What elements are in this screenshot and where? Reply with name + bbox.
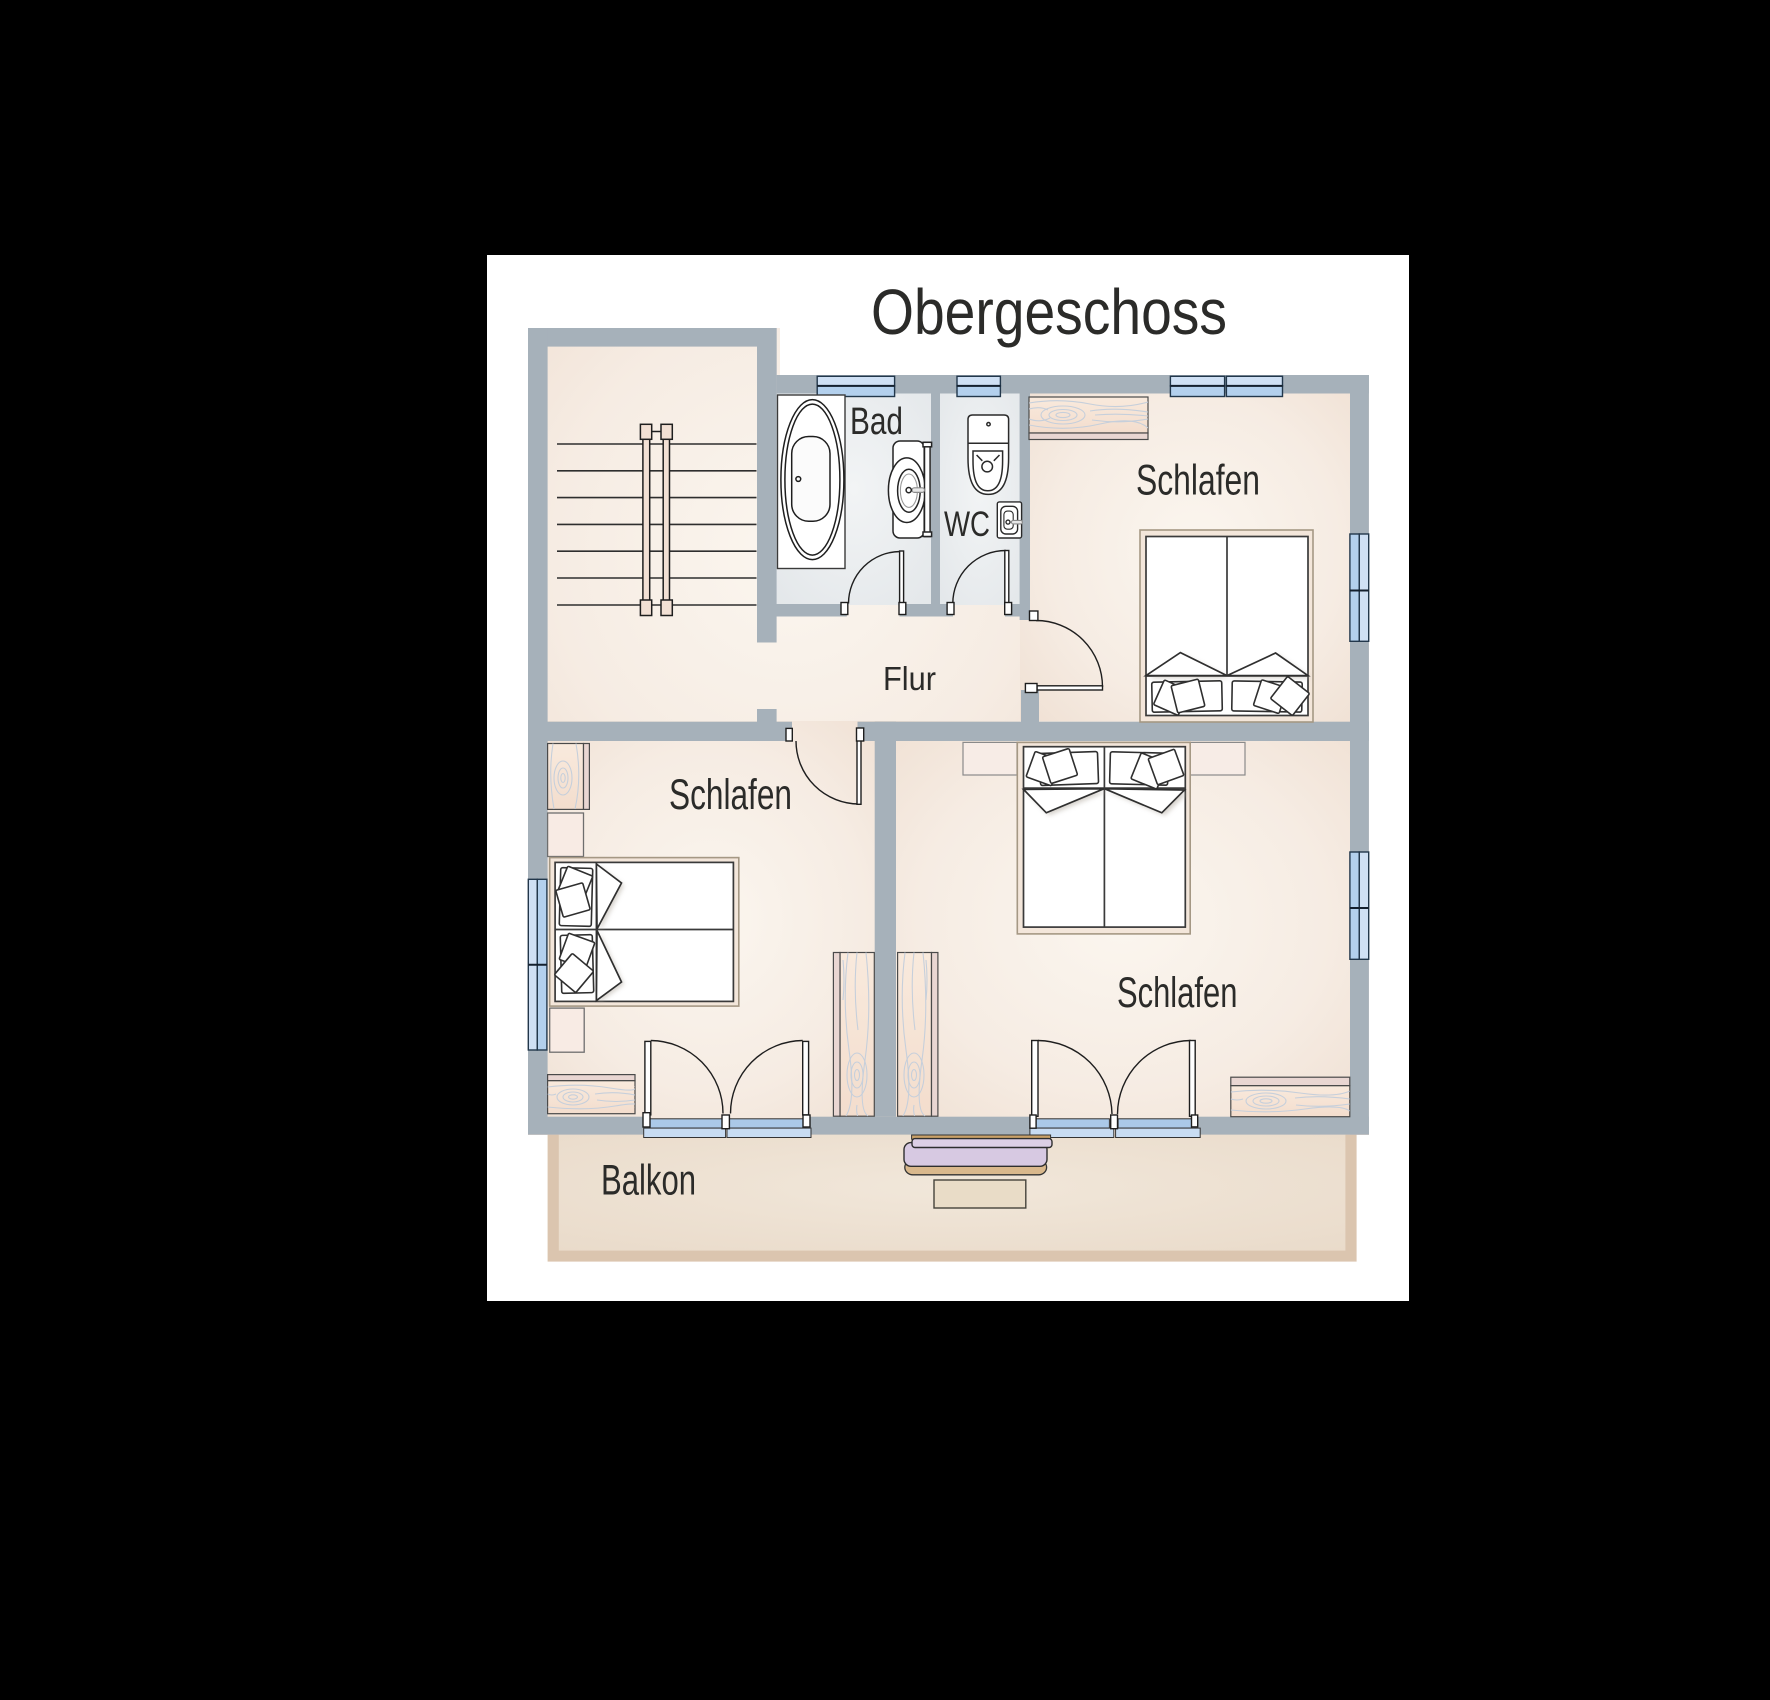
- svg-text:Schlafen: Schlafen: [669, 771, 792, 819]
- svg-text:Flur: Flur: [883, 661, 936, 698]
- svg-text:Obergeschoss: Obergeschoss: [871, 276, 1227, 348]
- svg-text:Schlafen: Schlafen: [1136, 457, 1260, 505]
- svg-text:WC: WC: [944, 505, 990, 544]
- svg-text:Schlafen: Schlafen: [1117, 969, 1237, 1017]
- svg-text:Balkon: Balkon: [601, 1156, 696, 1204]
- svg-text:Bad: Bad: [850, 401, 903, 443]
